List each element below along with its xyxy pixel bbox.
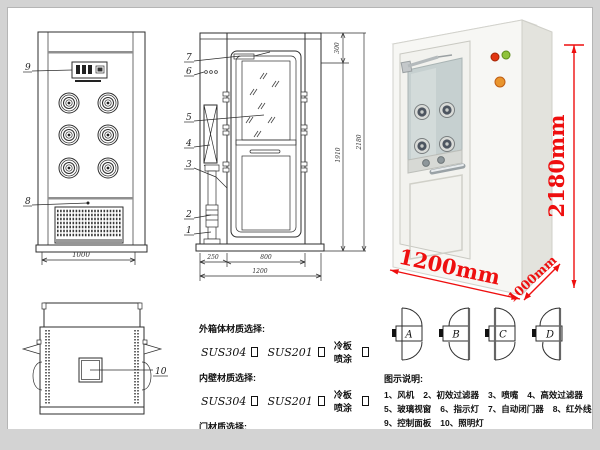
- door-option-a: A: [389, 305, 435, 363]
- door: [231, 51, 301, 237]
- air-shower-datasheet: { "front_view": { "callout_panel": "9", …: [0, 0, 600, 450]
- legend-row: 5、玻璃视窗6、指示灯7、自动闭门器8、红外线感应器: [384, 402, 598, 416]
- door-option-label: D: [545, 330, 554, 341]
- page-border-top: [0, 0, 600, 7]
- green-light-icon: [502, 51, 510, 59]
- checkbox[interactable]: [318, 347, 325, 357]
- svg-text:7: 7: [186, 53, 192, 63]
- checkbox[interactable]: [251, 347, 258, 357]
- svg-text:2: 2: [185, 210, 192, 220]
- base-plinth: [40, 407, 144, 414]
- callout-8: 8: [25, 197, 31, 207]
- door-option-label: A: [404, 330, 412, 341]
- option-label: 冷板喷涂: [334, 388, 357, 414]
- svg-text:4: 4: [185, 139, 192, 149]
- checkbox[interactable]: [362, 347, 369, 357]
- page-border-bottom: [0, 429, 600, 450]
- option-label: SUS201: [267, 346, 312, 359]
- door-option-d: D: [529, 305, 575, 363]
- svg-text:1: 1: [186, 226, 192, 236]
- width-dimensions: 250 800 1200: [200, 253, 321, 281]
- svg-text:1000: 1000: [72, 251, 90, 259]
- svg-text:300: 300: [334, 42, 341, 54]
- page-border-left: [0, 0, 7, 450]
- option-label: 冷板喷涂: [334, 339, 357, 365]
- door-option-b: B: [436, 305, 482, 363]
- callout-9: 9: [25, 63, 31, 73]
- emergency-button-icon: [495, 77, 505, 87]
- material-options-row: SUS304 SUS201 冷板喷涂: [201, 339, 369, 365]
- base-plinth: [196, 244, 324, 251]
- door-option-label: C: [499, 330, 507, 341]
- svg-text:6: 6: [186, 67, 192, 77]
- svg-text:250: 250: [206, 254, 219, 261]
- checkbox[interactable]: [362, 396, 369, 406]
- legend-title: 图示说明:: [384, 372, 598, 385]
- option-label: SUS304: [201, 395, 246, 408]
- red-light-icon: [491, 53, 499, 61]
- front-width-dimension: 1000: [42, 251, 135, 265]
- checkbox[interactable]: [251, 396, 258, 406]
- material-options-row: SUS304 SUS201 冷板喷涂: [201, 388, 369, 414]
- material-group-label: 外箱体材质选择:: [199, 322, 369, 335]
- page-border-right: [593, 0, 600, 450]
- front-view-drawing: 9 8 1000: [20, 25, 148, 267]
- photo-dim-height: 2180mm: [544, 115, 569, 218]
- side-view-drawing: 7 6 5 4 3 2 1 300 1910 2180 250 800: [182, 25, 368, 293]
- callout-10: 10: [155, 367, 167, 377]
- material-group-label: 内壁材质选择:: [199, 371, 369, 384]
- legend-row: 1、风机2、初效过滤器3、喷嘴4、高效过滤器: [384, 388, 598, 402]
- option-label: SUS304: [201, 346, 246, 359]
- filter-box-icon: [204, 105, 217, 163]
- top-view-drawing: 10: [22, 300, 192, 430]
- svg-text:5: 5: [186, 113, 192, 123]
- option-label: SUS201: [267, 395, 312, 408]
- svg-text:1910: 1910: [335, 147, 342, 162]
- base-plinth: [36, 245, 147, 252]
- legend-row: 9、控制面板10、照明灯: [384, 416, 598, 430]
- checkbox[interactable]: [318, 396, 325, 406]
- height-dimensions: 300 1910 2180: [321, 33, 366, 251]
- svg-text:800: 800: [260, 254, 272, 261]
- svg-text:2180: 2180: [356, 134, 363, 150]
- fan-housing: [44, 303, 140, 327]
- top-trim-band: [48, 51, 133, 54]
- door-option-c: C: [482, 305, 528, 363]
- return-air-grille-icon: [55, 207, 123, 243]
- legend: 图示说明: 1、风机2、初效过滤器3、喷嘴4、高效过滤器 5、玻璃视窗6、指示灯…: [384, 372, 598, 430]
- product-photo: 2180mm 1200mm 1000mm: [378, 12, 594, 308]
- door-option-label: B: [451, 330, 459, 341]
- svg-text:1200: 1200: [252, 268, 267, 275]
- svg-text:3: 3: [186, 160, 192, 170]
- rear-column: [305, 33, 321, 244]
- bottom-trim-band: [48, 197, 133, 200]
